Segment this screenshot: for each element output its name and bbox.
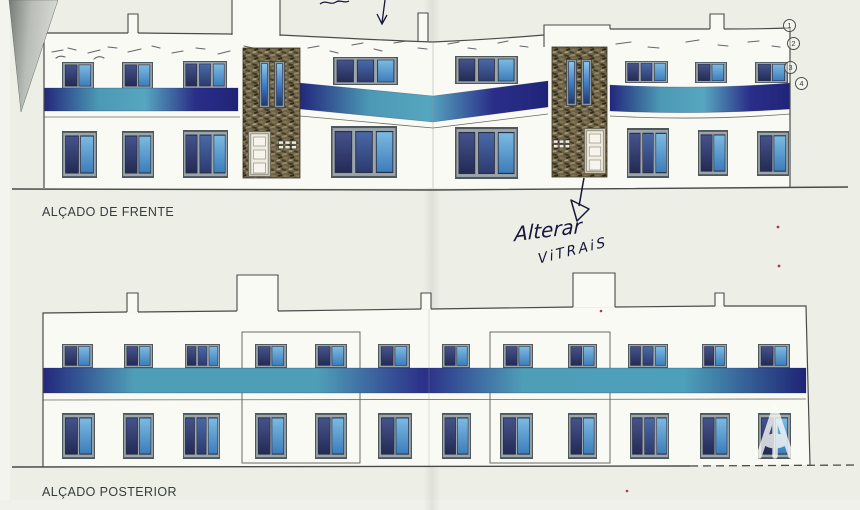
window [456,57,518,84]
stone-tower-right [544,25,610,177]
window [701,414,730,458]
window [569,344,597,367]
balcony-band [44,88,238,111]
window [501,414,533,458]
window [702,344,726,367]
vitral-window [567,60,577,106]
ground-line [12,466,690,467]
chimney [573,273,615,307]
window [316,344,347,367]
window [123,132,154,177]
window [63,414,95,458]
window [256,414,287,458]
window [63,344,93,367]
window [256,344,287,367]
chimney [128,14,138,33]
callout-marker-1: 1 [783,19,796,32]
entrance-door [249,132,271,177]
callout-marker-4: 4 [795,77,808,90]
front-elevation-label: ALÇADO DE FRENTE [42,205,174,219]
window [442,344,469,367]
callout-marker-3: 3 [784,61,797,74]
callout-marker-2: 2 [787,37,800,50]
window [699,131,728,175]
window [379,414,412,458]
window [63,63,94,89]
window [124,414,154,458]
window [626,61,668,82]
chimney [710,14,724,29]
window [316,414,347,458]
chimney [715,293,724,306]
window [630,414,668,458]
window [63,132,97,177]
window [183,414,219,458]
pen-arrow-top [377,0,387,24]
chimney [418,13,428,41]
window [758,132,789,175]
vitral-window [582,60,592,106]
window [628,344,667,367]
chimney [421,293,431,309]
window [504,344,533,367]
chimney [237,275,278,311]
window [759,344,790,367]
scanned-drawing-page: ALÇADO DE FRENTE ALÇADO POSTERIOR Altera… [0,0,860,510]
rear-elevation-label: ALÇADO POSTERIOR [42,485,177,499]
window [184,131,228,177]
balcony-band [43,368,806,393]
pen-scribble [320,1,349,4]
window [123,63,153,89]
window [569,414,597,458]
window [334,58,397,85]
vitral-window [260,62,270,108]
window [456,128,518,178]
window [627,129,668,177]
window [379,344,410,367]
window [332,127,396,177]
balcony-band [610,83,790,113]
window [184,62,227,89]
chimney [127,293,138,312]
window [185,344,219,367]
window [443,414,471,458]
vitral-window [275,62,285,108]
window [756,62,788,82]
window [696,62,727,82]
scan-edge-left [0,0,10,510]
elevation-drawing [0,0,860,510]
window [125,344,153,367]
entrance-door [584,129,605,174]
